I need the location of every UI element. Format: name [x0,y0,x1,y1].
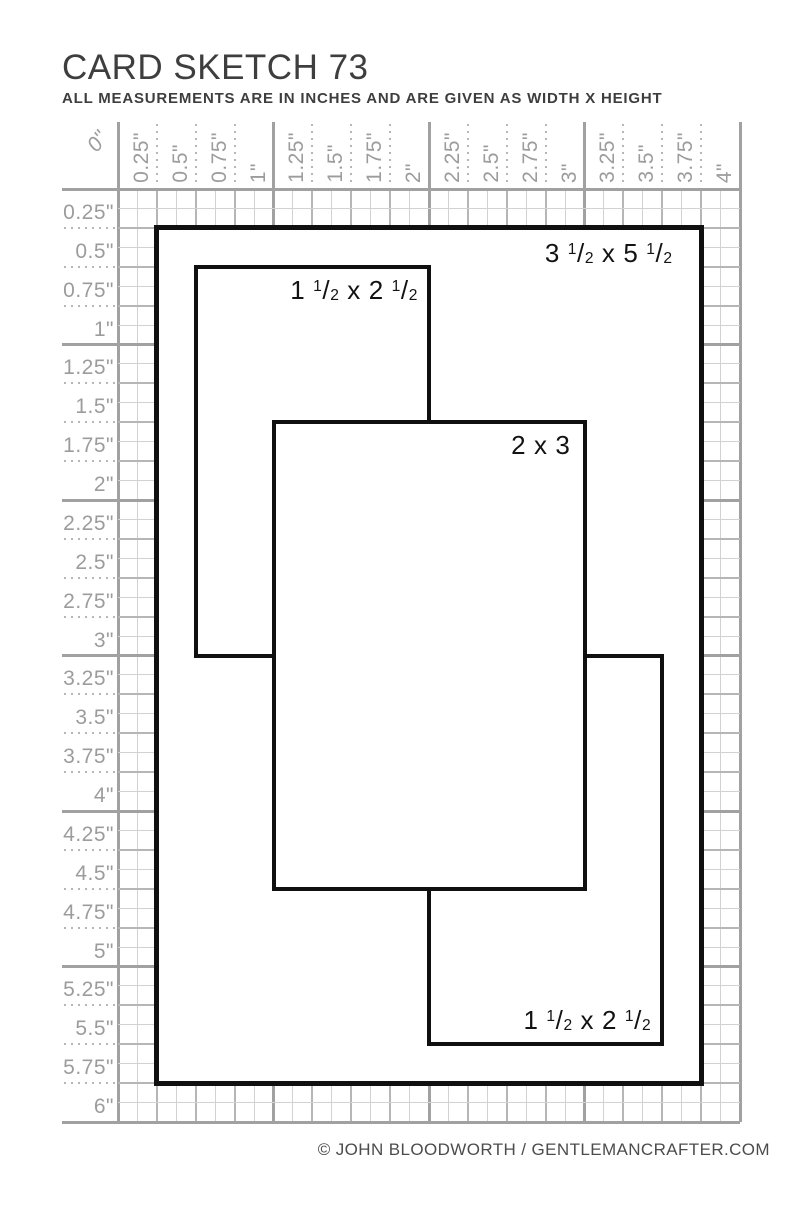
top-ruler-inch-tick [272,122,275,189]
left-ruler-inch-tick [62,654,118,657]
top-ruler-quarter-tick [350,124,352,183]
ruler-label-top: 0.25" [130,132,154,183]
top-ruler-quarter-tick [700,124,702,183]
measurement-label: 1 1/2 x 2 1/2 [523,1005,651,1036]
left-ruler-quarter-tick [64,1043,116,1045]
credit-text: © JOHN BLOODWORTH / GENTLEMANCRAFTER.COM [318,1140,770,1160]
ruler-label-left: 2.5" [36,550,114,576]
ruler-label-left: 1.25" [36,355,114,381]
ruler-label-left: 3" [36,628,114,654]
left-ruler-quarter-tick [64,1004,116,1006]
ruler-label-left: 4.5" [36,861,114,887]
left-ruler-quarter-tick [64,732,116,734]
ruler-label-left: 2.25" [36,511,114,537]
left-ruler-quarter-tick [64,1082,116,1084]
left-ruler-quarter-tick [64,693,116,695]
top-ruler-quarter-tick [234,124,236,183]
fraction: 1/2 [646,238,672,268]
left-ruler-inch-tick [62,965,118,968]
left-ruler-quarter-tick [64,305,116,307]
left-ruler-inch-tick [62,810,118,813]
measurement-label: 3 1/2 x 5 1/2 [545,238,673,269]
ruler-label-left: 4" [36,783,114,809]
left-ruler-quarter-tick [64,538,116,540]
top-ruler-quarter-tick [389,124,391,183]
ruler-label-left: 0.25" [36,200,114,226]
card-sketch-page: CARD SKETCH 73 ALL MEASUREMENTS ARE IN I… [0,0,809,1213]
left-ruler-inch-tick [62,1121,118,1124]
left-ruler-quarter-tick [64,616,116,618]
left-ruler-quarter-tick [64,460,116,462]
ruler-label-top: 1.75" [363,132,387,183]
left-ruler-quarter-tick [64,227,116,229]
fraction: 1/2 [392,275,418,305]
ruler-label-left: 3.25" [36,666,114,692]
ruler-label-left: 1.5" [36,394,114,420]
top-ruler-quarter-tick [506,124,508,183]
ruler-label-left: 2" [36,472,114,498]
ruler-label-left: 4.25" [36,822,114,848]
top-ruler-quarter-tick [311,124,313,183]
ruler-label-top: 2" [402,163,426,183]
top-ruler-inch-tick [117,122,120,189]
fraction: 1/2 [546,1005,572,1035]
left-ruler-quarter-tick [64,577,116,579]
left-ruler-quarter-tick [64,927,116,929]
ruler-label-left: 0.75" [36,278,114,304]
ruler-label-top: 2.5" [480,144,504,183]
ruler-label-top: 0.5" [169,144,193,183]
ruler-label-top: 3" [558,163,582,183]
left-ruler-inch-tick [62,188,118,191]
left-ruler-quarter-tick [64,266,116,268]
top-ruler-quarter-tick [467,124,469,183]
grid-line-horizontal [118,1121,740,1124]
ruler-label-left: 5.25" [36,977,114,1003]
ruler-label-top: 1.5" [324,144,348,183]
ruler-label-left: 5.75" [36,1055,114,1081]
top-ruler-inch-tick [583,122,586,189]
ruler-label-left: 0.5" [36,239,114,265]
ruler-label-top: 1" [247,163,271,183]
measurement-label: 2 x 3 [511,430,570,461]
left-ruler-inch-tick [62,499,118,502]
ruler-label-left: 2.75" [36,589,114,615]
ruler-label-top: 3.25" [596,132,620,183]
ruler-label-left: 5" [36,939,114,965]
fraction: 1/2 [568,238,594,268]
ruler-label-top: 3.5" [635,144,659,183]
ruler-label-left: 3.5" [36,705,114,731]
ruler-label-left: 5.5" [36,1016,114,1042]
sketch-diagram: 0"0.25"0.5"0.75"1"1.25"1.5"1.75"2"2.25"2… [0,0,809,1213]
fraction: 1/2 [313,275,339,305]
panel-center: 2 x 3 [272,420,587,891]
measurement-label: 1 1/2 x 2 1/2 [290,275,418,306]
ruler-label-top: 2.75" [519,132,543,183]
top-ruler-inch-tick [739,122,742,189]
ruler-label-left: 3.75" [36,744,114,770]
ruler-label-top: 1.25" [285,132,309,183]
top-ruler-quarter-tick [661,124,663,183]
left-ruler-quarter-tick [64,888,116,890]
ruler-label-top: 0.75" [208,132,232,183]
fraction: 1/2 [625,1005,651,1035]
top-ruler-quarter-tick [156,124,158,183]
ruler-label-top: 3.75" [674,132,698,183]
grid-line-horizontal [118,1102,740,1103]
ruler-label-left: 1.75" [36,433,114,459]
left-ruler-quarter-tick [64,382,116,384]
top-ruler-quarter-tick [545,124,547,183]
top-ruler-quarter-tick [622,124,624,183]
left-ruler-quarter-tick [64,849,116,851]
ruler-label-zero: 0" [77,120,120,164]
ruler-label-top: 2.25" [441,132,465,183]
grid-line-horizontal [118,208,740,209]
left-ruler-quarter-tick [64,771,116,773]
left-ruler-inch-tick [62,343,118,346]
top-ruler-inch-tick [428,122,431,189]
ruler-label-left: 6" [36,1094,114,1120]
left-ruler-quarter-tick [64,421,116,423]
top-ruler-quarter-tick [195,124,197,183]
ruler-label-left: 1" [36,317,114,343]
ruler-label-top: 4" [713,163,737,183]
ruler-label-left: 4.75" [36,900,114,926]
